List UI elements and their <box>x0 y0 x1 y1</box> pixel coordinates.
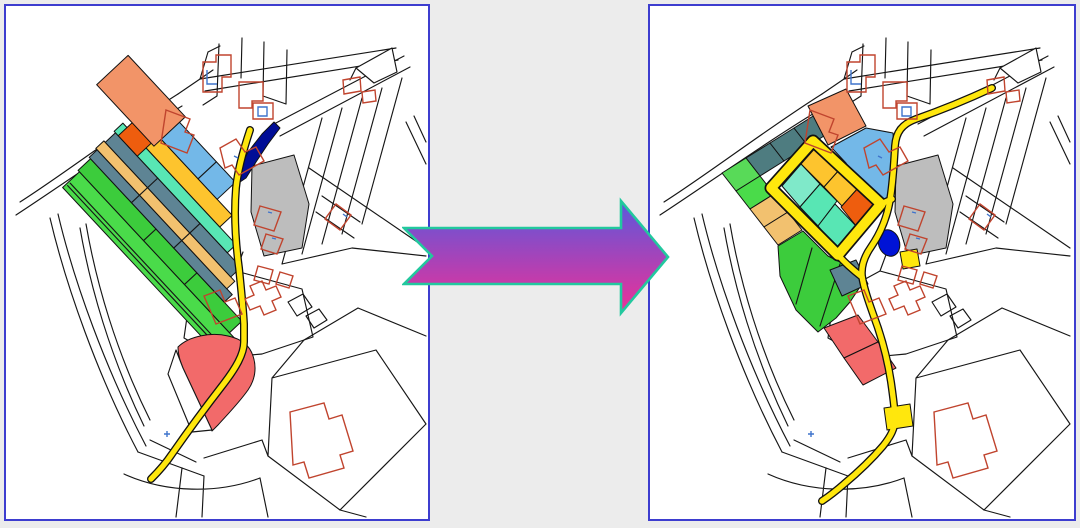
after-map-panel <box>648 4 1076 521</box>
right-arrow-icon <box>404 201 668 313</box>
before-map-panel <box>4 4 430 521</box>
arrow-svg <box>402 197 670 323</box>
road-square-bulge <box>884 404 913 430</box>
transformation-arrow <box>402 197 670 323</box>
after-map <box>650 6 1074 519</box>
figure-canvas <box>0 0 1080 528</box>
before-map <box>6 6 428 519</box>
